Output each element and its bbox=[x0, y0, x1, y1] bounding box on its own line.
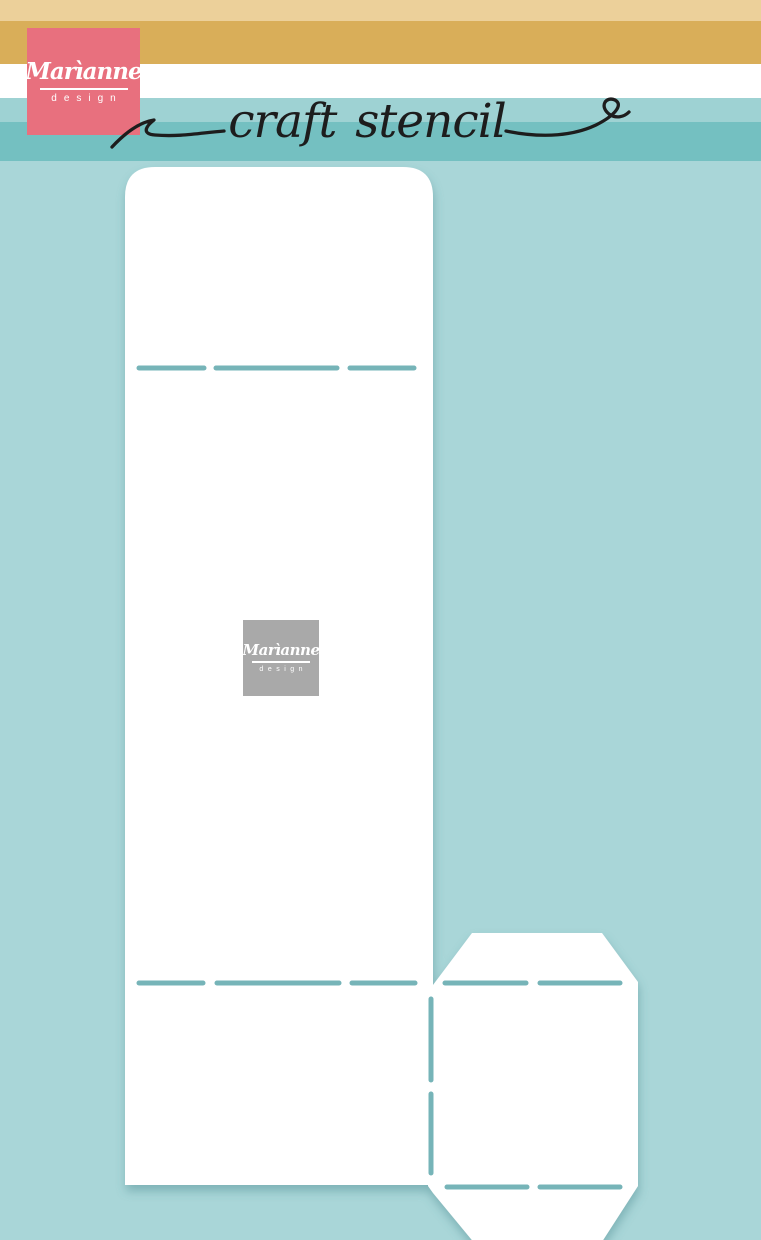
title-text: craft stencil bbox=[228, 94, 506, 149]
stencil-flap-outline bbox=[428, 933, 638, 1240]
stencil-svg bbox=[0, 0, 761, 1240]
watermark-brand-name: Marìanne bbox=[243, 643, 320, 658]
watermark-logo: Marìanne design bbox=[243, 620, 319, 696]
title-script: craft stencil bbox=[0, 85, 761, 165]
title-swash-left-icon bbox=[112, 120, 224, 147]
brand-name: Marìanne bbox=[25, 60, 141, 83]
title-swash-right-icon bbox=[506, 99, 629, 135]
watermark-subtitle: design bbox=[255, 666, 307, 673]
watermark-rule bbox=[252, 661, 310, 663]
product-sheet: Marìanne design craft stencil Marìanne d… bbox=[0, 0, 761, 1240]
stencil-outline-group bbox=[125, 167, 638, 1240]
